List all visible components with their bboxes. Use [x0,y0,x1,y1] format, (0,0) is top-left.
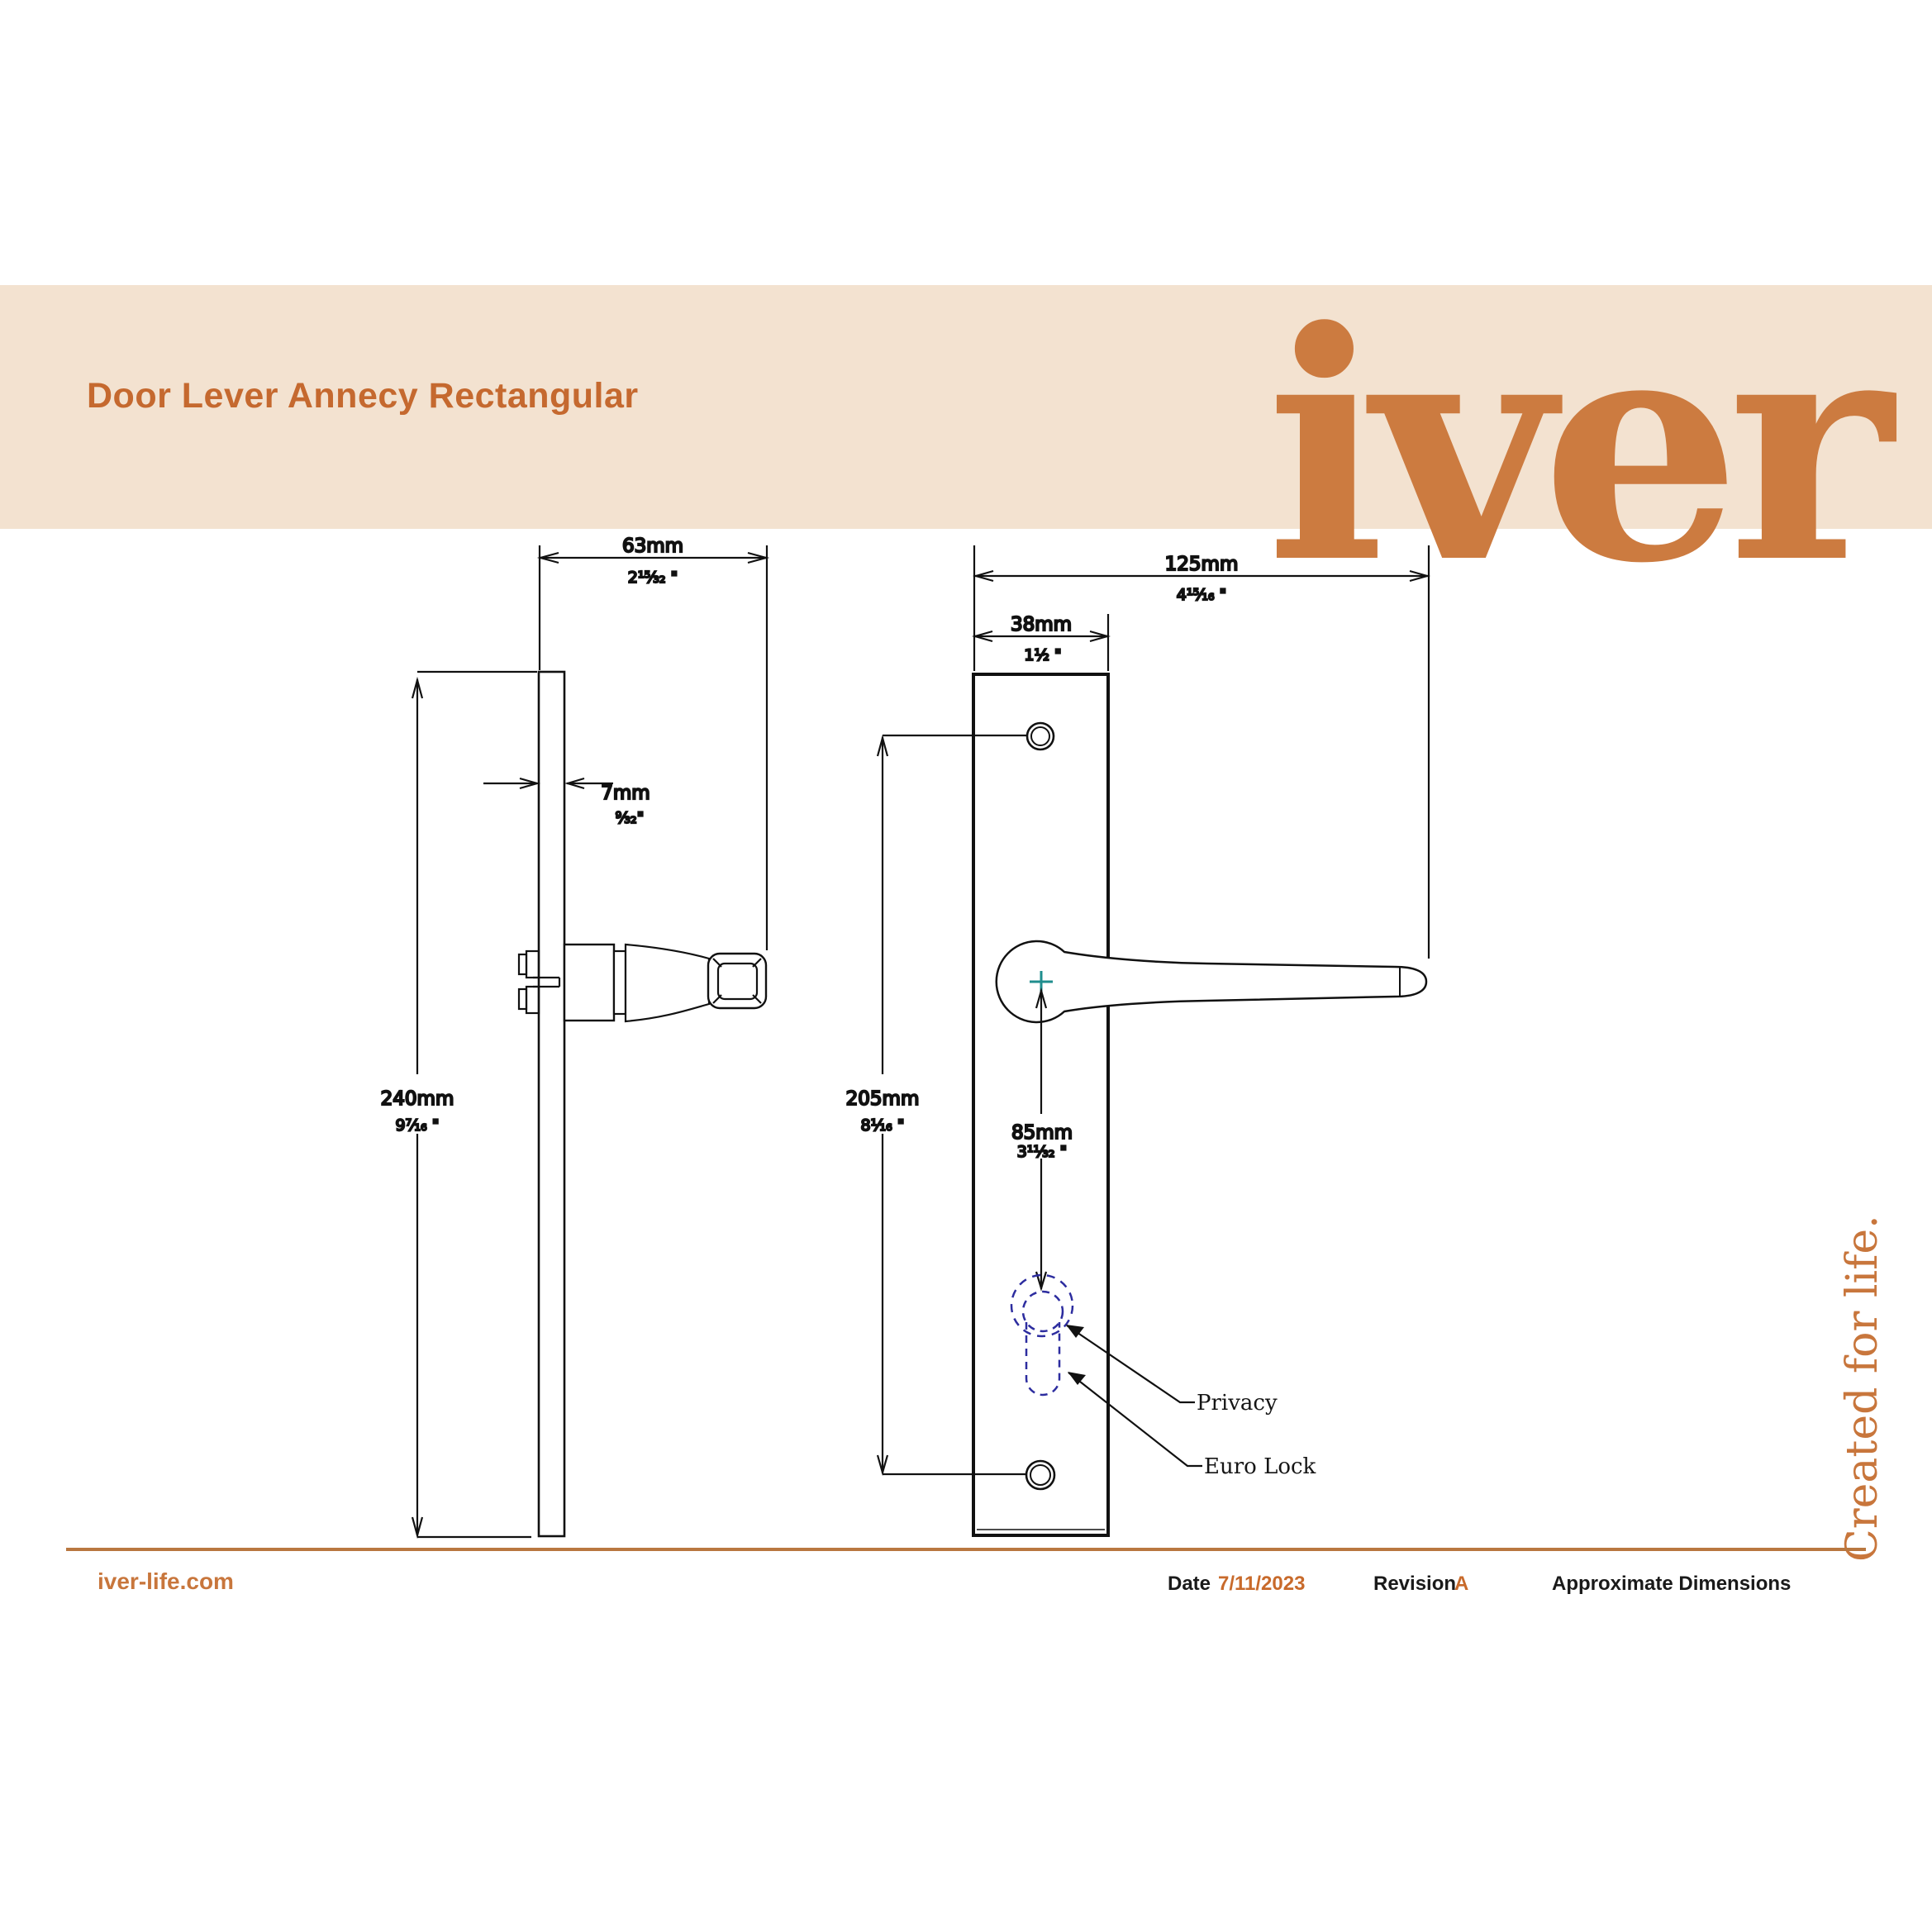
date-label: Date [1168,1573,1211,1596]
front-lever [997,941,1426,1022]
side-plate [539,672,564,1536]
front-view: 125mm 4¹⁵⁄₁₆ " 38mm 1¹⁄₂ " 205mm [846,545,1429,1535]
privacy-leader [1066,1325,1195,1402]
dim-fixing-centres-mm: 205mm [846,1088,920,1110]
dim-projection-inch: 2¹⁵⁄₃₂ " [628,569,678,587]
dim-thickness-mm: 7mm [601,783,650,804]
dim-total-width-mm: 125mm [1165,554,1239,575]
tagline-vertical-text: Created for life. [1838,1149,1887,1562]
footer-separator [66,1548,1866,1551]
side-view: 63mm 2¹⁵⁄₃₂ " 7mm ⁹⁄₃₂" 240mm 9⁷⁄₁₆ " [381,535,767,1537]
dim-plate-width-inch: 1¹⁄₂ " [1024,646,1061,664]
dim-lock-centre-inch: 3¹¹⁄₃₂ " [1017,1143,1068,1161]
dim-projection-mm: 63mm [622,535,683,557]
euro-leader [1068,1372,1202,1466]
spec-sheet-page: Door Lever Annecy Rectangular iver 63mm … [0,0,1932,1932]
dim-total-width-inch: 4¹⁵⁄₁₆ " [1177,586,1227,604]
dim-fixing-centres-inch: 8¹⁄₁₆ " [861,1116,905,1135]
side-handle [519,945,766,1021]
dim-lock-centre-mm: 85mm [1011,1122,1073,1144]
privacy-label: Privacy [1197,1391,1278,1416]
technical-drawing: 63mm 2¹⁵⁄₃₂ " 7mm ⁹⁄₃₂" 240mm 9⁷⁄₁₆ " [0,0,1932,1932]
euro-lock-label: Euro Lock [1204,1454,1316,1479]
dim-thickness-inch: ⁹⁄₃₂" [616,809,645,827]
dim-height-mm: 240mm [381,1088,454,1110]
dim-height-inch: 9⁷⁄₁₆ " [396,1116,440,1135]
website-link[interactable]: iver-life.com [98,1568,234,1595]
date-value: 7/11/2023 [1218,1573,1305,1596]
dim-plate-width-mm: 38mm [1011,614,1072,635]
revision-value: A [1454,1573,1468,1596]
revision-label: Revision [1373,1573,1456,1596]
approximate-dimensions-note: Approximate Dimensions [1552,1573,1791,1596]
euro-cylinder-cutout [1023,1292,1063,1331]
